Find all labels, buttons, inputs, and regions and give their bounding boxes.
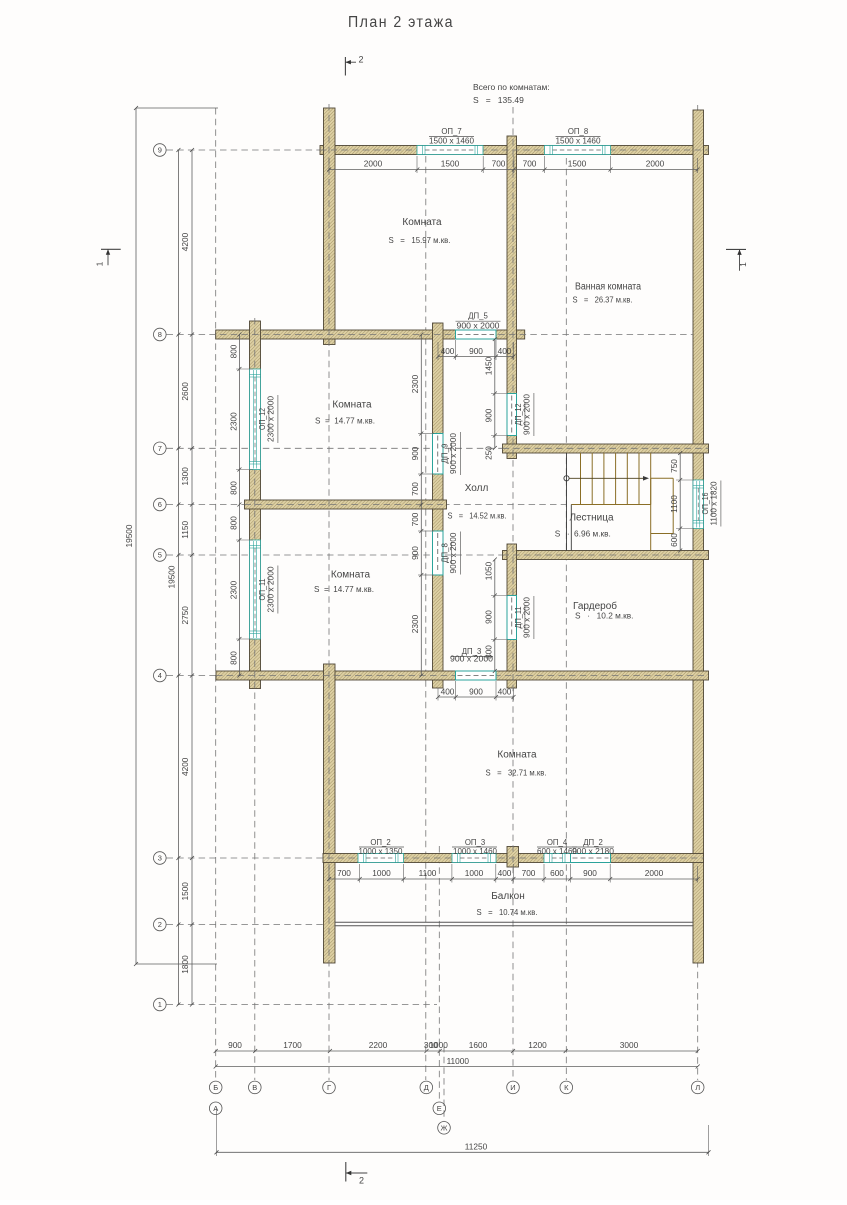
svg-text:1700: 1700 [283, 1040, 302, 1050]
svg-text:4200: 4200 [180, 232, 190, 251]
svg-text:900: 900 [583, 868, 597, 878]
svg-text:S = 15.97 м.кв.: S = 15.97 м.кв. [389, 235, 451, 245]
svg-text:S = 135.49: S = 135.49 [473, 95, 524, 105]
svg-text:900: 900 [410, 446, 420, 460]
svg-text:7: 7 [158, 444, 162, 453]
svg-text:1100 x 1820: 1100 x 1820 [710, 481, 719, 526]
svg-text:S: S [555, 529, 561, 539]
svg-text:Д: Д [424, 1083, 429, 1092]
svg-text:800: 800 [229, 344, 239, 358]
svg-text:Б: Б [213, 1083, 218, 1092]
svg-text:1500: 1500 [180, 882, 190, 901]
svg-text:19500: 19500 [167, 565, 177, 588]
svg-text:2: 2 [359, 1176, 364, 1186]
svg-text:∙ 6.96 м.кв.: ∙ 6.96 м.кв. [567, 529, 611, 539]
svg-text:900: 900 [228, 1040, 242, 1050]
svg-text:600: 600 [669, 533, 679, 547]
svg-text:2300 x 2000: 2300 x 2000 [267, 566, 276, 613]
svg-text:800: 800 [229, 651, 239, 665]
svg-text:1200: 1200 [528, 1040, 547, 1050]
svg-text:700: 700 [492, 159, 506, 169]
svg-text:1000 x 1460: 1000 x 1460 [453, 847, 498, 856]
svg-text:900: 900 [469, 687, 483, 697]
svg-text:700: 700 [522, 868, 536, 878]
svg-text:Комната: Комната [497, 750, 537, 761]
svg-text:400: 400 [498, 868, 512, 878]
svg-text:400: 400 [441, 346, 455, 356]
svg-text:Комната: Комната [332, 400, 372, 411]
svg-text:ОП_3: ОП_3 [465, 838, 485, 847]
svg-text:900 x 2000: 900 x 2000 [523, 596, 532, 638]
svg-text:2600: 2600 [180, 382, 190, 401]
svg-text:1000 x 1350: 1000 x 1350 [359, 847, 404, 856]
svg-text:2300 x 2000: 2300 x 2000 [267, 395, 276, 442]
svg-text:1: 1 [95, 261, 105, 266]
svg-text:S = 14.77 м.кв.: S = 14.77 м.кв. [315, 416, 375, 426]
svg-text:900 x 2000: 900 x 2000 [457, 321, 501, 330]
svg-text:11250: 11250 [465, 1141, 488, 1151]
svg-text:900: 900 [410, 546, 420, 560]
svg-text:S ∙ 10.2 м.кв.: S ∙ 10.2 м.кв. [575, 611, 633, 621]
svg-text:1500 x 1460: 1500 x 1460 [429, 137, 475, 146]
svg-text:1100: 1100 [419, 868, 437, 878]
svg-text:Балкон: Балкон [491, 891, 525, 902]
svg-text:1500: 1500 [568, 159, 587, 169]
svg-text:400: 400 [498, 346, 512, 356]
svg-text:S = 14.52 м.кв.: S = 14.52 м.кв. [448, 511, 507, 521]
svg-text:Холл: Холл [465, 483, 489, 494]
svg-text:800: 800 [229, 481, 239, 495]
svg-text:Л: Л [695, 1083, 700, 1092]
svg-text:Комната: Комната [331, 570, 371, 581]
svg-text:1500 x 1460: 1500 x 1460 [556, 137, 602, 146]
svg-text:2300: 2300 [410, 614, 420, 633]
svg-text:900 x 2000: 900 x 2000 [449, 532, 458, 574]
svg-text:400: 400 [441, 687, 455, 697]
svg-text:1500: 1500 [441, 159, 460, 169]
svg-text:2300: 2300 [229, 412, 239, 431]
svg-text:Комната: Комната [402, 217, 442, 228]
svg-text:ОП_2: ОП_2 [370, 838, 390, 847]
svg-text:ОП_4: ОП_4 [547, 838, 568, 847]
svg-text:700: 700 [410, 512, 420, 526]
svg-text:700: 700 [523, 159, 537, 169]
svg-text:11000: 11000 [447, 1056, 470, 1066]
svg-text:S = 14.77 м.кв.: S = 14.77 м.кв. [314, 584, 374, 594]
svg-text:9: 9 [158, 146, 162, 155]
svg-text:1100: 1100 [669, 495, 679, 513]
svg-text:И: И [510, 1083, 515, 1092]
svg-text:2000: 2000 [645, 868, 664, 878]
svg-text:900 x 2000: 900 x 2000 [449, 432, 458, 474]
svg-text:2750: 2750 [180, 606, 190, 625]
svg-text:Е: Е [437, 1104, 442, 1113]
svg-text:700: 700 [410, 482, 420, 496]
svg-text:8: 8 [158, 330, 162, 339]
svg-text:1000: 1000 [372, 868, 391, 878]
svg-text:19500: 19500 [124, 524, 134, 547]
svg-text:Лестница: Лестница [569, 513, 614, 524]
svg-text:2000: 2000 [364, 159, 383, 169]
svg-text:1000: 1000 [429, 1040, 448, 1050]
svg-text:S = 26.37 м.кв.: S = 26.37 м.кв. [573, 295, 633, 305]
svg-text:2300: 2300 [410, 374, 420, 393]
svg-text:2300: 2300 [229, 580, 239, 599]
svg-text:1450: 1450 [484, 356, 494, 375]
svg-text:ОП_7: ОП_7 [441, 127, 461, 136]
svg-text:900: 900 [484, 610, 494, 624]
svg-text:1: 1 [738, 262, 748, 267]
svg-text:3: 3 [158, 854, 162, 863]
svg-text:1600: 1600 [469, 1040, 488, 1050]
svg-text:900 x 2180: 900 x 2180 [572, 847, 615, 856]
svg-text:К: К [564, 1083, 569, 1092]
svg-text:3000: 3000 [620, 1040, 639, 1050]
svg-text:900 x 2000: 900 x 2000 [523, 393, 532, 435]
svg-text:В: В [252, 1083, 257, 1092]
svg-text:А: А [213, 1104, 218, 1113]
svg-text:800: 800 [229, 516, 239, 530]
svg-text:4: 4 [158, 671, 162, 680]
svg-text:ДП_2: ДП_2 [583, 838, 603, 847]
svg-text:4200: 4200 [180, 757, 190, 776]
svg-text:2: 2 [358, 55, 363, 65]
svg-text:6: 6 [158, 500, 162, 509]
svg-text:1800: 1800 [180, 955, 190, 974]
svg-text:400: 400 [498, 687, 512, 697]
svg-text:1000: 1000 [465, 868, 484, 878]
svg-text:5: 5 [158, 551, 162, 560]
svg-text:Ванная комната: Ванная комната [575, 282, 641, 293]
svg-text:900: 900 [469, 346, 483, 356]
svg-text:300: 300 [484, 645, 494, 659]
svg-text:План 2 этажа: План 2 этажа [348, 14, 454, 31]
svg-text:ДП_5: ДП_5 [468, 312, 488, 321]
svg-text:Всего по комнатам:: Всего по комнатам: [473, 82, 550, 92]
svg-text:1: 1 [158, 1000, 162, 1009]
svg-text:1050: 1050 [484, 561, 494, 580]
svg-text:2: 2 [158, 920, 162, 929]
svg-text:700: 700 [337, 868, 351, 878]
svg-text:Г: Г [327, 1083, 331, 1092]
svg-text:600: 600 [550, 868, 564, 878]
svg-text:1150: 1150 [180, 520, 190, 538]
svg-text:2200: 2200 [369, 1040, 388, 1050]
svg-text:2000: 2000 [646, 159, 665, 169]
svg-text:900: 900 [484, 408, 494, 422]
svg-text:ОП_8: ОП_8 [568, 127, 588, 136]
svg-text:1300: 1300 [180, 467, 190, 486]
svg-text:Ж: Ж [441, 1123, 448, 1132]
svg-text:S = 10.74 м.кв.: S = 10.74 м.кв. [477, 907, 538, 917]
svg-text:750: 750 [669, 459, 679, 473]
svg-text:250: 250 [484, 446, 494, 460]
svg-text:S = 32.71 м.кв.: S = 32.71 м.кв. [486, 768, 547, 778]
